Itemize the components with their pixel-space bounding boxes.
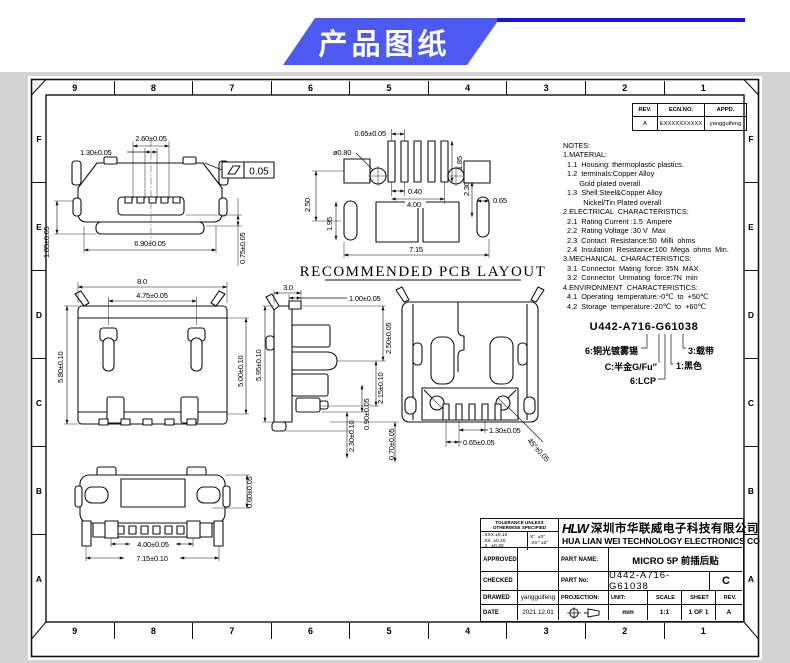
company-name-cn: 深圳市华联威电子科技有限公司	[591, 520, 759, 536]
dim-label: 8.0	[137, 277, 147, 286]
top-view: 8.0 4.75±0.05 5.80±0.10 5.00±0.10	[56, 277, 249, 425]
scale-label: SCALE	[648, 591, 682, 605]
part-code-label: 3:载带	[688, 345, 714, 356]
part-name-label: PART NAME:	[559, 548, 609, 572]
bottom-front-view: 4.00±0.05 7.15±0.10 0.60±0.05	[75, 467, 254, 563]
dim-label: 1.85	[455, 156, 464, 170]
sheet-label: SHEET	[682, 591, 716, 605]
part-code-block: U442-A716-G61038 6:铜光镀雾锡 C:半金G/Fu″ 6:LCP…	[585, 321, 714, 386]
checked-value	[518, 572, 559, 591]
dim-label: 2.30	[462, 182, 471, 196]
drawed-label: DRAWED	[481, 591, 518, 605]
dim-label: 1.30±0.05	[80, 148, 112, 157]
front-view: 2.60±0.05 1.30±0.05 6.90±0.05 1.85±0.05 …	[42, 134, 274, 266]
part-no-rev: C	[710, 572, 742, 591]
unit-label: UNIT:	[609, 591, 648, 605]
dim-label: 0.60±0.05	[245, 476, 254, 508]
drawed-value: yangguifeng	[518, 591, 559, 605]
dim-label: 7.15±0.10	[136, 554, 168, 563]
dim-label: 4.75±0.05	[136, 291, 168, 300]
part-name-value: MICRO 5P 前插后贴	[609, 548, 742, 572]
approved-value	[518, 548, 559, 572]
checked-label: CHECKED	[481, 572, 518, 591]
projection-symbol-cell	[559, 605, 609, 620]
part-code-label: 6:LCP	[630, 376, 656, 386]
dim-label: 2.15±0.10	[376, 372, 385, 404]
company-box: HLW 深圳市华联威电子科技有限公司 HUA LIAN WEI TECHNOLO…	[559, 519, 742, 548]
pcb-layout-title: RECOMMENDED PCB LAYOUT	[300, 264, 547, 280]
dim-label: 3.0	[283, 283, 293, 292]
dim-label: 0.65±0.05	[354, 129, 386, 138]
sheet-value: 1 OF 1	[682, 605, 716, 620]
part-code: U442-A716-G61038	[590, 321, 699, 333]
dim-label: 7.15	[409, 245, 423, 254]
dim-label: 5.80±0.10	[56, 351, 65, 383]
dim-label: 0.75±0.05	[238, 232, 247, 264]
scale-value: 1:1	[648, 605, 682, 620]
product-drawing-page: 产品图纸 987654321 987654321 FEDCBA FEDCBA R…	[0, 0, 790, 663]
date-value: 2021.12.01	[518, 605, 559, 620]
part-code-label: C:半金G/Fu″	[605, 361, 658, 372]
dim-label: 1.95	[325, 217, 334, 231]
tolerance-linear: .XXX ±0.10	[483, 533, 507, 538]
dim-label: 5.00±0.10	[236, 355, 245, 387]
part-no-label: PART No:	[559, 572, 609, 591]
projection-label: PROJECTION:	[559, 591, 609, 605]
side-view: 3.0 1.00±0.05 5.95±0.10 2.50±0.05 2.15±0…	[254, 283, 399, 462]
dim-label: 2.50	[303, 198, 312, 212]
company-name-en: HUA LIAN WEI TECHNOLOGY ELECTRONICS CO	[562, 536, 760, 546]
dim-label: 5.95±0.10	[254, 349, 263, 381]
dim-label: 4.00±0.05	[137, 540, 169, 549]
rev-label: REV.	[716, 591, 742, 605]
dim-label: 0.40	[408, 187, 422, 196]
approved-label: APPROVED	[481, 548, 518, 572]
dim-label: 1.30±0.05	[489, 426, 521, 435]
pcb-layout-view: 0.65±0.05 ø0.80 2.50 1.95 1.85 0.40 4.00…	[300, 129, 547, 280]
date-label: DATE	[481, 605, 518, 620]
dim-label: 6.90±0.05	[134, 239, 166, 248]
title-block: TOLERANCE UNLESS OTHERWISE SPECIFIED .XX…	[480, 518, 744, 622]
dim-label: 0.70±0.05	[387, 428, 396, 460]
unit-value: mm	[609, 605, 648, 620]
dim-label: 4.00	[407, 200, 421, 209]
rev-value: A	[716, 605, 742, 620]
part-no-value: U442-A716-G61038	[609, 572, 710, 591]
dim-label: 1.00±0.05	[349, 294, 381, 303]
part-code-label: 6:铜光镀雾锡	[585, 345, 638, 356]
third-angle-projection-icon	[567, 607, 601, 619]
part-code-label: 1:黑色	[676, 360, 702, 371]
tolerance-angular: X° ±3°	[530, 535, 545, 540]
tolerance-linear: .XX ±0.20	[483, 539, 505, 544]
dim-label: 2.50±0.05	[384, 322, 393, 354]
dim-label: 1.85±0.05	[42, 226, 51, 258]
dim-label: 0.65±0.05	[463, 438, 495, 447]
flatness-value: 0.05	[249, 167, 269, 178]
bottom-view: 1.30±0.05 0.65±0.05 45°±0.05	[396, 287, 551, 464]
dim-label: 2.30±0.10	[347, 420, 356, 452]
dim-label: 45°±0.05	[526, 436, 552, 463]
dim-label: 2.60±0.05	[135, 134, 167, 143]
company-logo: HLW	[562, 521, 588, 536]
dim-label: 0.65	[493, 196, 507, 205]
tolerance-header: OTHERWISE SPECIFIED	[493, 525, 546, 530]
dim-label: ø0.80	[333, 148, 351, 157]
tolerance-angular: .XX° ±2°	[530, 541, 548, 546]
dim-label: 0.90±0.05	[362, 398, 371, 430]
tolerance-box: TOLERANCE UNLESS OTHERWISE SPECIFIED .XX…	[481, 519, 559, 548]
